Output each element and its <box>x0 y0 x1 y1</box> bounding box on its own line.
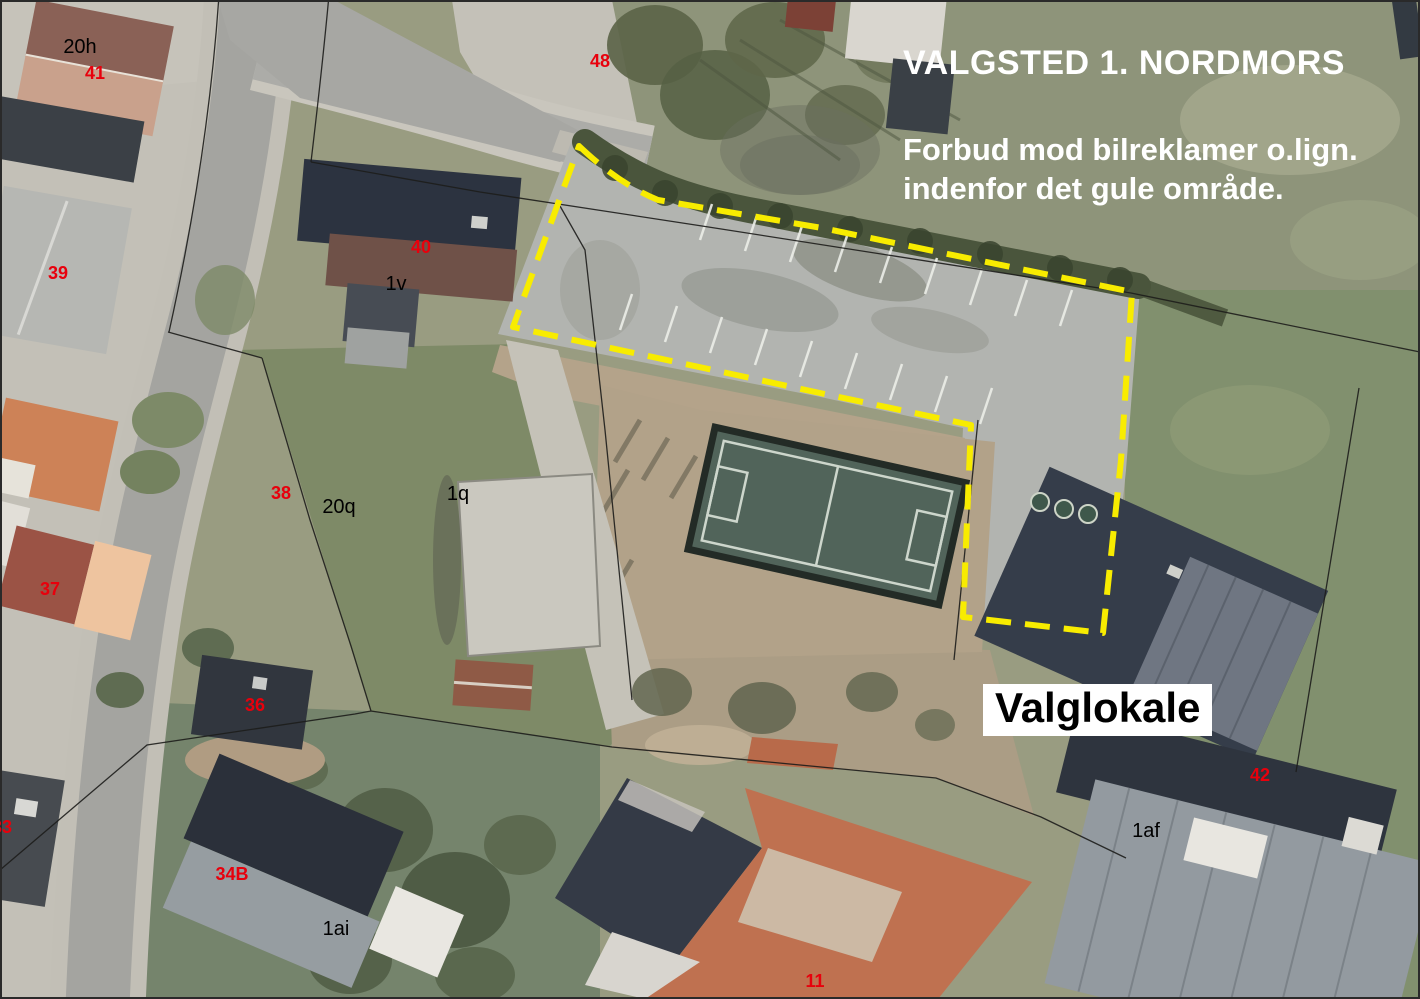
aerial-map: VALGSTED 1. NORDMORS Forbud mod bilrekla… <box>0 0 1420 999</box>
parcel-label-33: 33 <box>0 818 12 836</box>
parcel-label-48: 48 <box>590 52 610 70</box>
parcel-label-36: 36 <box>245 696 265 714</box>
map-notice-line1: Forbud mod bilreklamer o.lign. <box>903 130 1358 169</box>
polling-station-label: Valglokale <box>983 684 1212 736</box>
parcel-label-37: 37 <box>40 580 60 598</box>
address-label-1af: 1af <box>1132 821 1160 841</box>
address-label-1v: 1v <box>385 274 406 294</box>
map-notice-line2: indenfor det gule område. <box>903 169 1358 208</box>
parcel-label-42: 42 <box>1250 766 1270 784</box>
map-notice: Forbud mod bilreklamer o.lign. indenfor … <box>903 130 1358 209</box>
map-title-block: VALGSTED 1. NORDMORS <box>903 44 1345 83</box>
address-label-20h: 20h <box>63 37 96 57</box>
parcel-label-41: 41 <box>85 64 105 82</box>
parcel-label-39: 39 <box>48 264 68 282</box>
parcel-label-34B: 34B <box>215 865 248 883</box>
address-label-20q: 20q <box>322 497 355 517</box>
address-label-1q: 1q <box>447 484 469 504</box>
map-title: VALGSTED 1. NORDMORS <box>903 44 1345 83</box>
parcel-label-11: 11 <box>805 972 824 990</box>
address-label-1ai: 1ai <box>323 919 350 939</box>
parcel-label-38: 38 <box>271 484 291 502</box>
parcel-label-40: 40 <box>411 238 431 256</box>
